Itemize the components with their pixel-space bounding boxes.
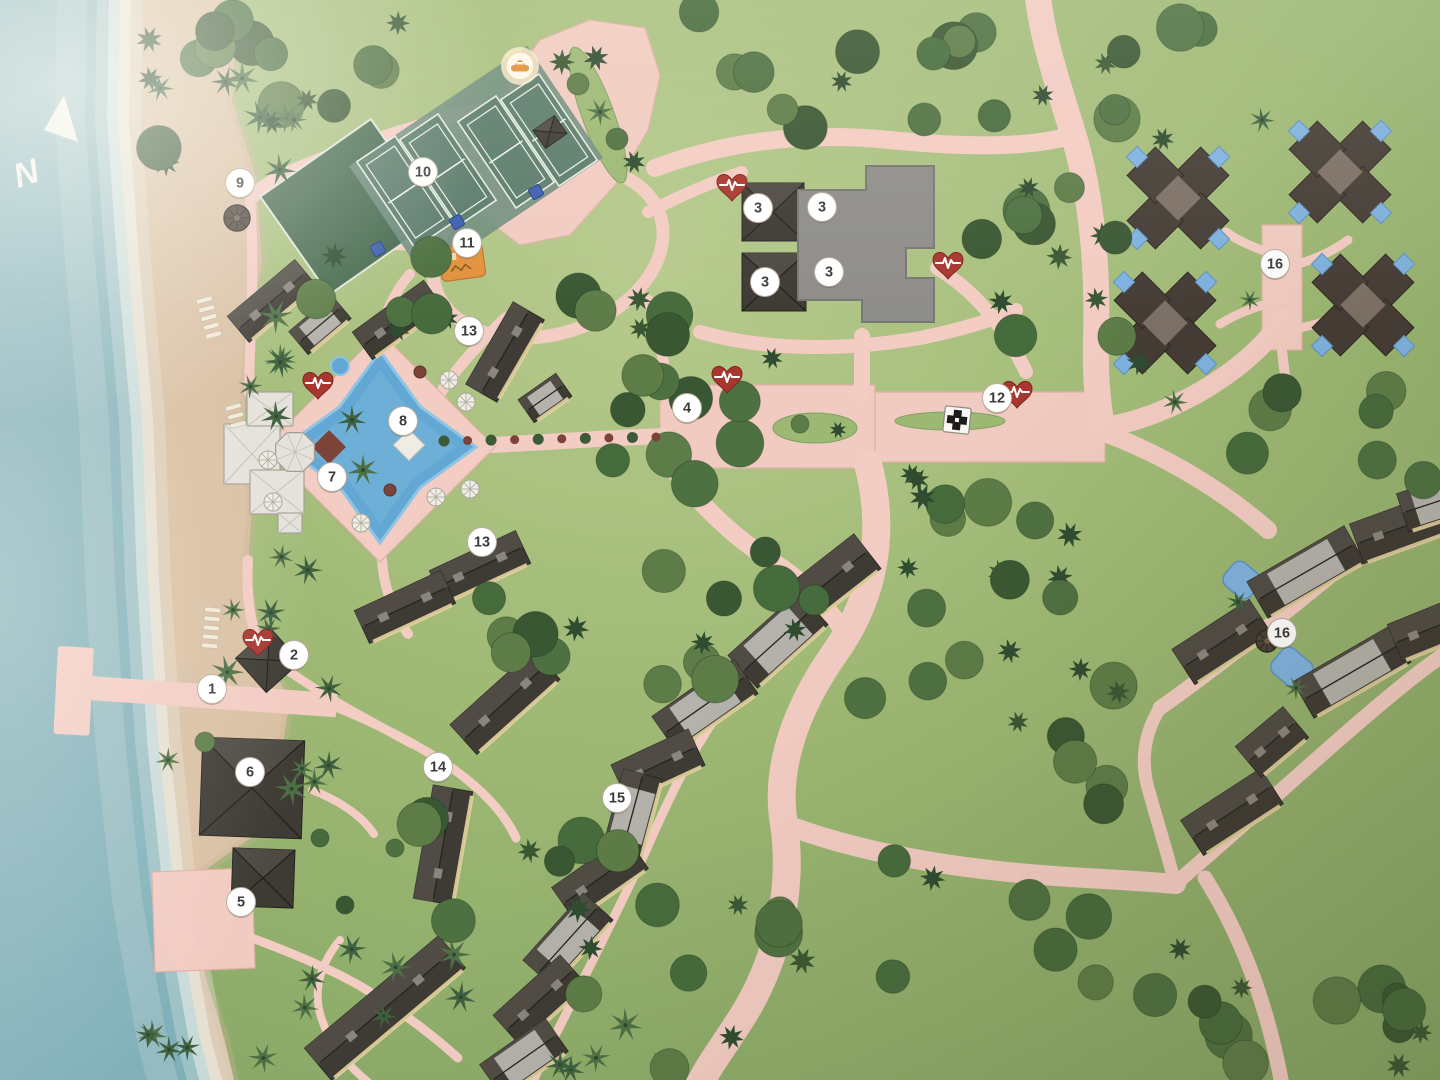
tree-round xyxy=(716,419,764,467)
palm-crown xyxy=(274,314,278,318)
tree-round xyxy=(622,355,664,397)
dormer xyxy=(433,868,443,879)
lounger xyxy=(203,625,219,631)
lounger xyxy=(202,634,218,640)
map-marker-3[interactable]: 3 xyxy=(751,268,780,299)
map-marker-11[interactable]: 11 xyxy=(453,229,482,260)
map-marker-16[interactable]: 16 xyxy=(1268,619,1297,650)
hedge-bush xyxy=(486,435,497,446)
tree-round xyxy=(1383,988,1426,1031)
hedge-bush-red xyxy=(463,436,472,445)
tree-round xyxy=(567,73,589,95)
tree-round xyxy=(767,94,798,125)
marker-number: 13 xyxy=(461,324,477,340)
tree-round xyxy=(566,976,602,1012)
hedge-bush xyxy=(580,433,591,444)
palm-crown xyxy=(382,1014,386,1018)
beach-umbrella xyxy=(427,488,445,506)
map-marker-14[interactable]: 14 xyxy=(424,753,453,784)
palm-crown xyxy=(394,965,398,969)
beach-umbrella xyxy=(457,393,475,411)
palm-crown xyxy=(452,953,456,957)
lounger xyxy=(201,643,217,649)
palm-crown xyxy=(350,418,354,422)
tree-round xyxy=(1084,784,1124,824)
lounger xyxy=(204,616,220,622)
tree-round xyxy=(1313,977,1360,1024)
hedge-bush-red xyxy=(557,434,566,443)
tree-round xyxy=(1226,432,1268,474)
palm-crown xyxy=(292,118,296,122)
palm-crown xyxy=(350,947,354,951)
tree-round xyxy=(296,279,336,319)
tree-round xyxy=(945,641,983,679)
tree-round xyxy=(1005,196,1043,234)
map-marker-5[interactable]: 5 xyxy=(227,888,256,919)
marker-number: 6 xyxy=(246,765,254,781)
map-marker-10[interactable]: 10 xyxy=(409,158,438,189)
marker-number: 1 xyxy=(208,682,216,698)
tree-round xyxy=(610,392,645,427)
tree-round xyxy=(195,732,215,752)
palm-crown xyxy=(274,414,278,418)
beach-umbrella xyxy=(264,493,282,511)
tree-round xyxy=(844,678,885,719)
palm-crown xyxy=(598,110,602,114)
marker-number: 11 xyxy=(459,236,474,252)
tree-round xyxy=(908,589,946,627)
tree-round xyxy=(311,829,329,847)
hedge-bush-red xyxy=(510,435,519,444)
car-window xyxy=(517,62,524,65)
tree-round xyxy=(1054,173,1084,203)
tree-round xyxy=(196,12,235,51)
flower-bush xyxy=(414,366,426,378)
tree-round xyxy=(644,665,682,703)
palm-crown xyxy=(146,1033,150,1037)
marker-number: 2 xyxy=(290,648,298,664)
beach-umbrella xyxy=(259,451,277,469)
palm-crown xyxy=(300,766,304,770)
cross-center xyxy=(955,418,959,422)
palm-crown xyxy=(361,468,365,472)
palm-crown xyxy=(278,360,282,364)
palm-crown xyxy=(278,168,282,172)
tree-round xyxy=(750,537,780,567)
map-marker-3[interactable]: 3 xyxy=(808,193,837,224)
palm-crown xyxy=(167,1048,171,1052)
palm-crown xyxy=(327,686,331,690)
palapa-cap xyxy=(234,215,240,221)
tree-round xyxy=(1017,502,1054,539)
marker-number: 3 xyxy=(761,275,769,291)
palm-crown xyxy=(231,608,235,612)
tree-round xyxy=(544,846,574,876)
spa-tub xyxy=(331,357,349,375)
tree-round xyxy=(878,845,911,878)
tree-round xyxy=(978,100,1010,132)
tree-round xyxy=(962,219,1002,259)
map-marker-15[interactable]: 15 xyxy=(603,784,632,815)
map-marker-12[interactable]: 12 xyxy=(983,384,1012,415)
tree-round xyxy=(964,479,1012,527)
palm-crown xyxy=(1260,118,1264,122)
palm-crown xyxy=(1248,298,1252,302)
marker-number: 7 xyxy=(328,470,336,486)
tree-round xyxy=(926,485,965,524)
tree-round xyxy=(1099,94,1130,125)
beach-umbrella xyxy=(352,514,370,532)
lobby-building xyxy=(278,513,302,533)
map-marker-3[interactable]: 3 xyxy=(744,194,773,225)
tree-round xyxy=(908,103,941,136)
tree-round xyxy=(491,633,531,673)
marker-number: 16 xyxy=(1274,626,1290,642)
palm-crown xyxy=(279,555,283,559)
tree-round xyxy=(317,89,350,122)
tree-round xyxy=(994,314,1037,357)
tree-round xyxy=(1066,894,1112,940)
pier-head xyxy=(53,646,94,736)
map-marker-13[interactable]: 13 xyxy=(455,317,484,348)
marker-number: 16 xyxy=(1267,257,1283,273)
tree-round xyxy=(596,443,630,477)
hedge-bush xyxy=(627,432,638,443)
marker-number: 3 xyxy=(825,265,833,281)
palapa-hut xyxy=(224,205,250,231)
tree-round xyxy=(836,30,880,74)
palm-crown xyxy=(1236,600,1240,604)
palm-crown xyxy=(1294,686,1298,690)
palm-crown xyxy=(306,568,310,572)
tree-round xyxy=(1098,317,1136,355)
tree-round xyxy=(1043,580,1078,615)
marker-number: 9 xyxy=(236,176,244,192)
tree-round xyxy=(397,802,441,846)
palm-crown xyxy=(269,611,273,615)
map-marker-3[interactable]: 3 xyxy=(815,258,844,289)
tree-round xyxy=(646,313,690,357)
car-body xyxy=(511,65,529,72)
marker-number: 3 xyxy=(818,200,826,216)
palm-crown xyxy=(558,1063,562,1067)
hedge-bush xyxy=(533,434,544,445)
palm-crown xyxy=(290,787,294,791)
map-marker-7[interactable]: 7 xyxy=(318,463,347,494)
marker-number: 13 xyxy=(474,535,490,551)
tree-round xyxy=(386,839,404,857)
palm-crown xyxy=(261,1056,265,1060)
road-median xyxy=(773,413,857,443)
road xyxy=(249,197,252,392)
palm-crown xyxy=(459,995,463,999)
palm-crown xyxy=(624,1023,628,1027)
tree-round xyxy=(876,960,910,994)
palm-crown xyxy=(594,1056,598,1060)
map-marker-4[interactable]: 4 xyxy=(673,394,702,425)
palm-crown xyxy=(166,758,170,762)
lobby-building xyxy=(247,392,293,426)
map-marker-16[interactable]: 16 xyxy=(1261,250,1290,281)
hedge-bush xyxy=(439,436,450,447)
parking-car-icon[interactable] xyxy=(501,47,539,85)
tree-round xyxy=(411,293,452,334)
tree-round xyxy=(597,829,639,871)
tree-round xyxy=(1099,221,1132,254)
marker-number: 10 xyxy=(415,165,431,181)
tree-round xyxy=(354,46,393,85)
hedge-bush-red xyxy=(652,433,661,442)
tree-round xyxy=(1107,35,1140,68)
tree-round xyxy=(756,901,802,947)
palm-crown xyxy=(312,780,316,784)
tree-round xyxy=(642,549,685,592)
map-marker-9[interactable]: 9 xyxy=(226,169,255,200)
tree-round xyxy=(575,290,616,331)
tree-round xyxy=(1090,662,1137,709)
marker-number: 12 xyxy=(989,391,1005,407)
tree-round xyxy=(1358,441,1396,479)
resort-map: 123333456789101112131314151616N xyxy=(0,0,1440,1080)
map-marker-6[interactable]: 6 xyxy=(236,758,265,789)
beach-umbrella xyxy=(461,480,479,498)
tree-round xyxy=(1405,461,1440,499)
tree-round xyxy=(411,236,452,277)
tree-round xyxy=(1133,973,1176,1016)
palm-crown xyxy=(185,1046,189,1050)
tree-round xyxy=(1034,928,1077,971)
tree-round xyxy=(917,37,950,70)
palm-crown xyxy=(249,385,253,389)
tree-round xyxy=(1223,1040,1268,1080)
map-marker-13[interactable]: 13 xyxy=(468,528,497,559)
tree-round xyxy=(254,37,288,71)
tree-round xyxy=(1188,985,1221,1018)
tree-round xyxy=(1078,965,1113,1000)
first-aid-sign-icon[interactable] xyxy=(943,406,972,435)
marker-number: 4 xyxy=(683,401,691,417)
tree-round xyxy=(733,52,774,93)
tree-round xyxy=(909,662,947,700)
hedge-bush-red xyxy=(604,433,613,442)
lounger xyxy=(205,607,221,613)
tree-round xyxy=(670,955,707,992)
palm-crown xyxy=(225,670,229,674)
tree-round xyxy=(472,582,505,615)
tree-round xyxy=(336,896,354,914)
marker-number: 5 xyxy=(237,895,245,911)
palm-crown xyxy=(158,86,162,90)
tree-round xyxy=(1263,374,1301,412)
map-marker-1[interactable]: 1 xyxy=(198,675,227,706)
map-marker-2[interactable]: 2 xyxy=(280,641,309,672)
tree-round xyxy=(137,125,182,170)
tree-round xyxy=(671,460,718,507)
marker-number: 15 xyxy=(609,791,625,807)
marker-number: 14 xyxy=(430,760,446,776)
palm-crown xyxy=(310,977,314,981)
tree-round xyxy=(692,656,739,703)
tree-round xyxy=(636,883,680,927)
tree-round xyxy=(791,415,809,433)
marker-number: 8 xyxy=(399,414,407,430)
tree-round xyxy=(706,581,741,616)
map-marker-8[interactable]: 8 xyxy=(389,407,418,438)
flower-bush xyxy=(384,484,396,496)
tree-round xyxy=(1053,740,1096,783)
tree-round xyxy=(799,585,830,616)
palm-crown xyxy=(240,76,244,80)
resort-map-photo: 123333456789101112131314151616N xyxy=(0,0,1440,1080)
beach-umbrella xyxy=(440,371,458,389)
palm-crown xyxy=(303,1005,307,1009)
tree-round xyxy=(1009,879,1050,920)
tree-round xyxy=(1156,4,1203,51)
palm-crown xyxy=(1173,400,1177,404)
tree-round xyxy=(606,128,628,150)
tree-round xyxy=(431,899,475,943)
palm-crown xyxy=(258,115,262,119)
palm-crown xyxy=(326,764,330,768)
lobby-rotunda xyxy=(276,433,315,472)
marker-number: 3 xyxy=(754,201,762,217)
tree-round xyxy=(753,565,799,611)
tree-round xyxy=(1359,394,1393,428)
